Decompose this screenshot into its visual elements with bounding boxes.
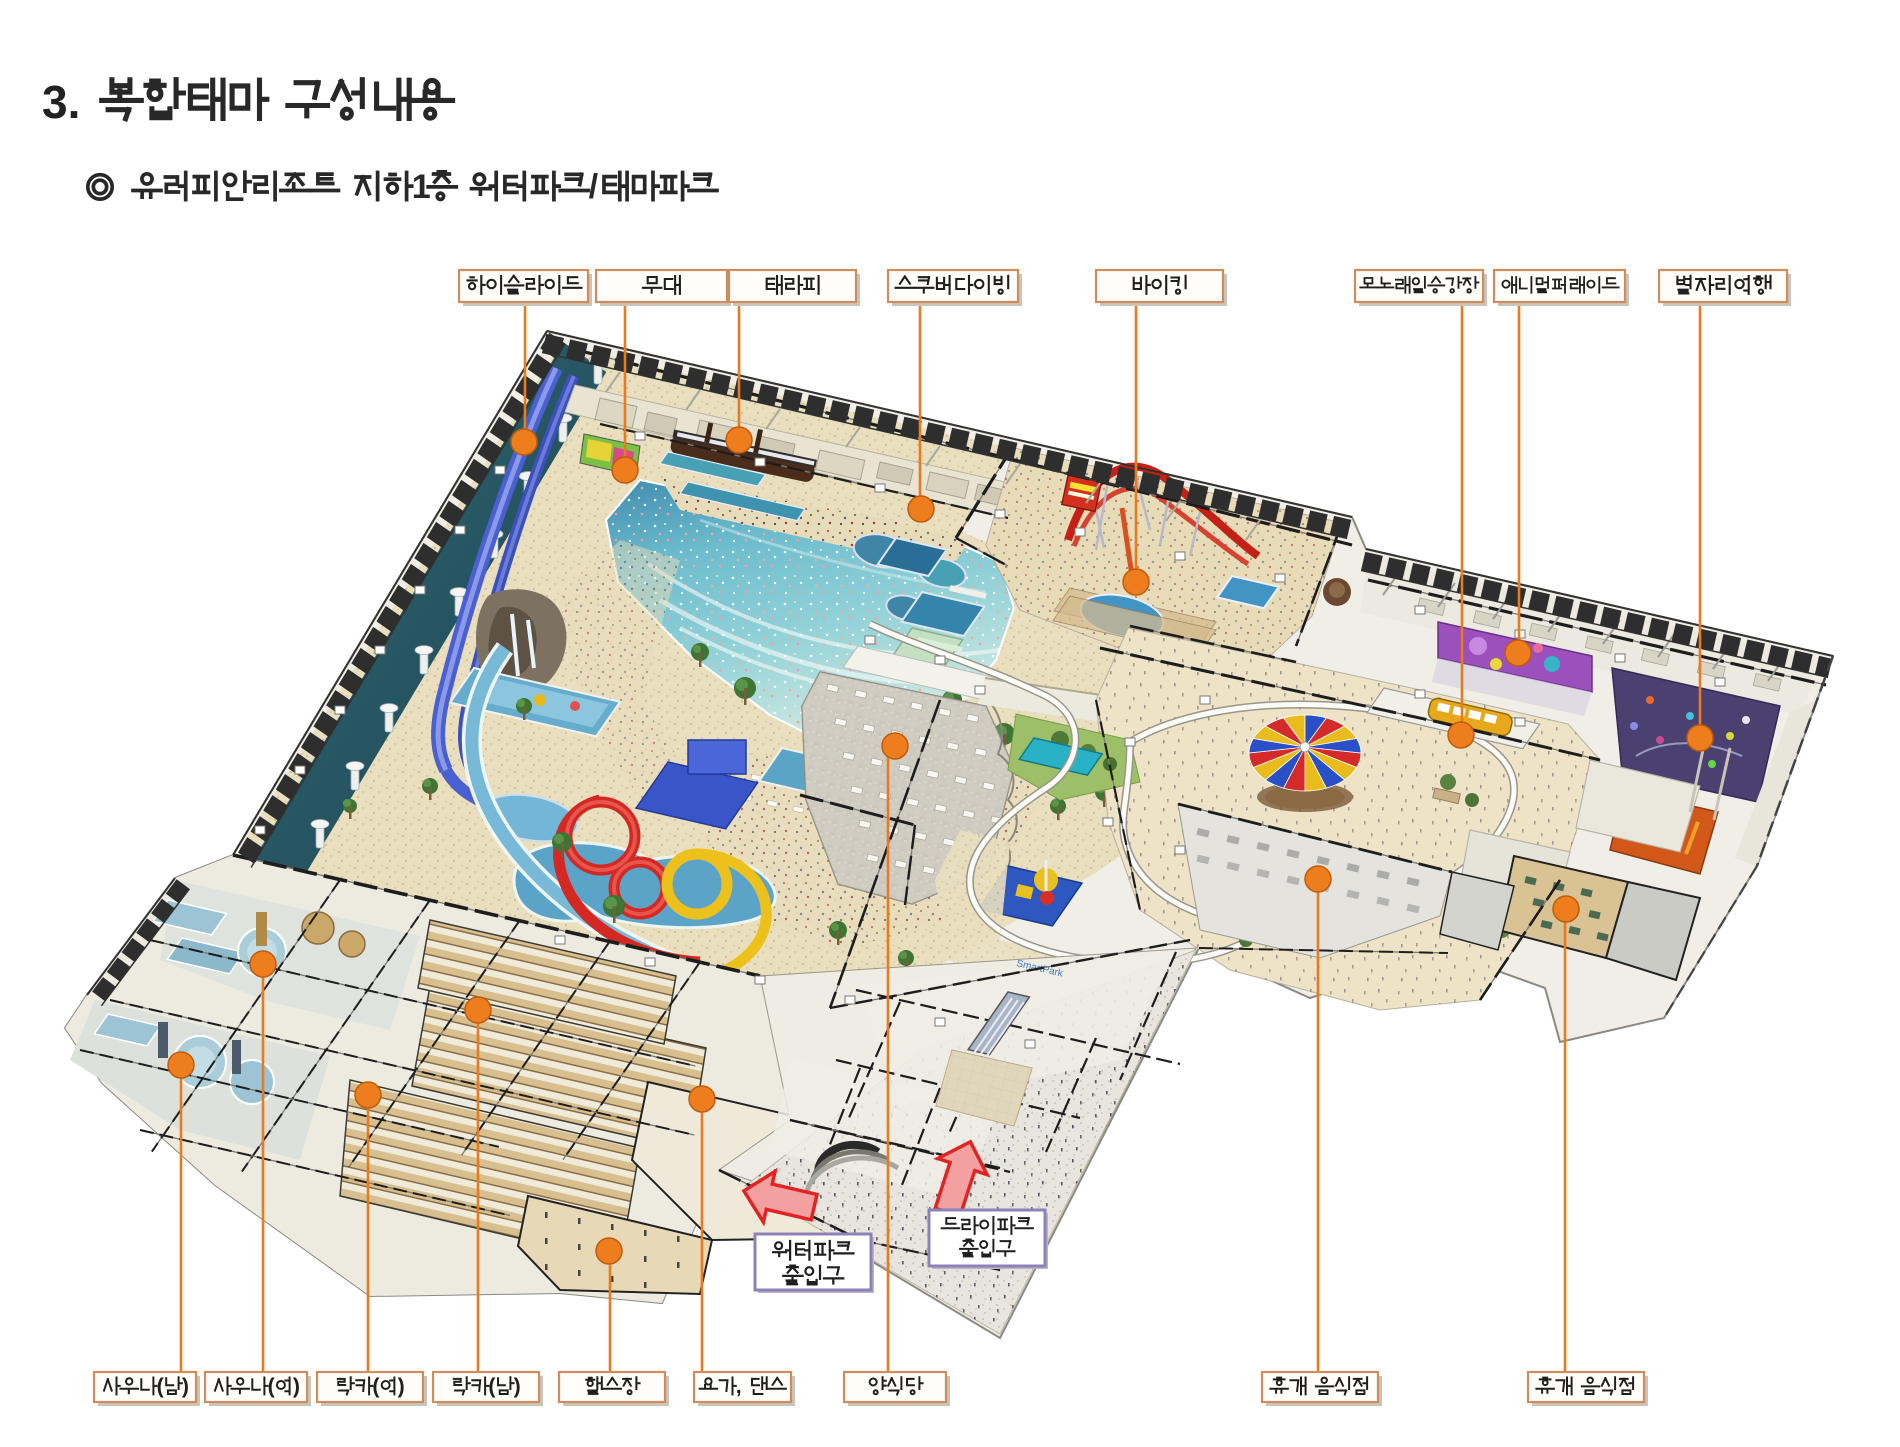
svg-text:(: ( <box>157 1374 165 1398</box>
svg-text:,: , <box>736 1374 742 1398</box>
svg-text:(: ( <box>488 1374 496 1398</box>
svg-text:3.: 3. <box>42 76 80 128</box>
svg-text:): ) <box>514 1374 521 1398</box>
svg-text:): ) <box>293 1374 300 1398</box>
svg-text:): ) <box>398 1374 405 1398</box>
svg-text:(: ( <box>268 1374 276 1398</box>
svg-text:): ) <box>182 1374 189 1398</box>
svg-text:/: / <box>589 168 599 206</box>
svg-text:(: ( <box>372 1374 380 1398</box>
